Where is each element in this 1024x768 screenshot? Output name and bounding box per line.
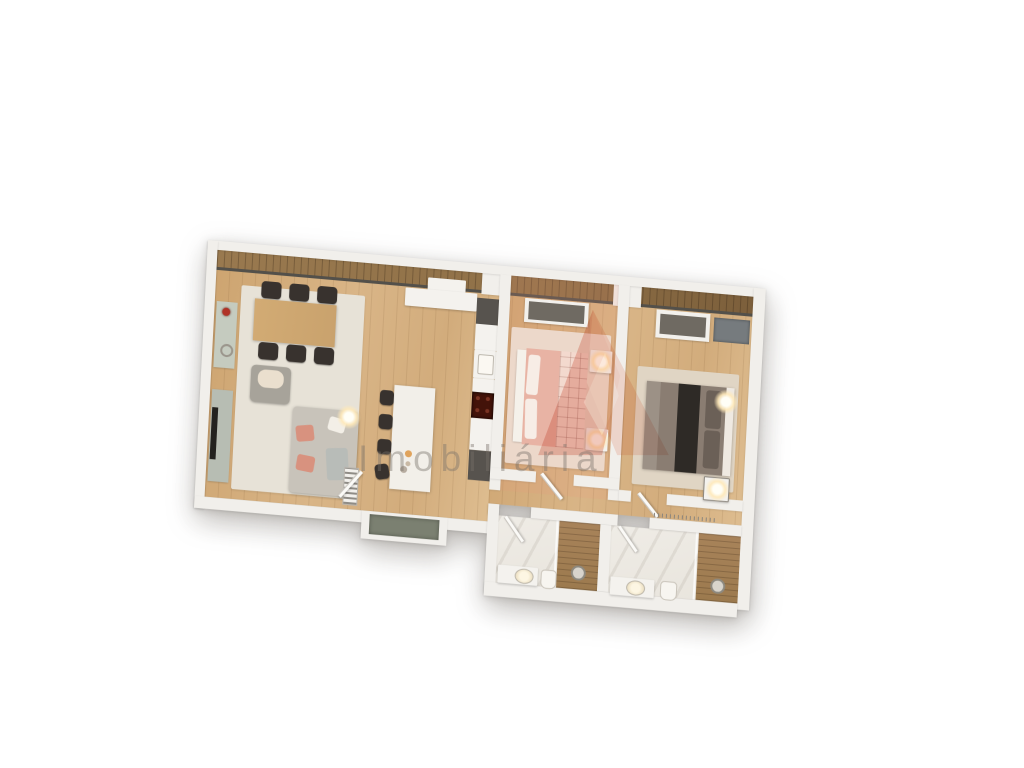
kitchen-sink [477,354,494,375]
kitchen-counter [474,324,497,352]
sofa-cushion [295,425,315,442]
armchair-seat [257,369,284,389]
bathroom2-toilet [660,581,678,601]
bedroom2-wardrobe-doors [659,314,706,338]
bed1-quilt [555,351,588,449]
dining-chair [261,281,282,300]
bedroom2-nightstand [703,476,730,502]
bathroom1-toilet [540,569,557,589]
bedroom1-nightstand [585,428,608,452]
dining-chair [258,342,279,361]
kitchen-counter-cabinet [476,298,499,326]
kitchen-island [389,385,435,492]
apartment-floorplan [191,240,766,621]
dining-chair [286,344,307,363]
bed2-pillow [702,430,720,469]
bar-stool [377,439,392,455]
dining-chair [314,347,335,366]
bedroom1-nightstand [589,350,612,374]
dining-chair [317,286,338,305]
bar-stool [374,463,390,480]
bedroom2-bottom-wall [619,490,632,502]
cooktop [471,392,494,420]
dining-table [253,298,337,347]
sofa-cushion [295,454,315,473]
bed2-runner [674,384,701,474]
bar-stool [380,390,395,406]
bar-stool [378,414,393,430]
kitchen-counter [469,418,493,452]
kitchen-counter-cabinet [468,450,491,482]
bedroom2-window-panel [713,317,750,344]
bed1-pillow [525,398,538,439]
cooktop-burner [476,396,480,400]
dining-chair [289,283,310,302]
floorplan-canvas: Imobiliária [0,0,1024,768]
bed2-pillow [705,390,723,429]
